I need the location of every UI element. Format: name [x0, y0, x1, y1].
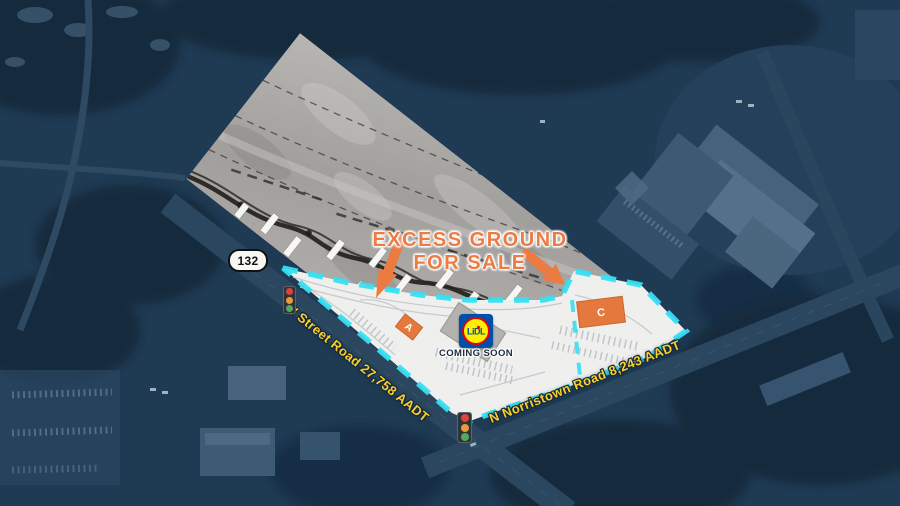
building-c: C	[577, 296, 626, 327]
building-c-label: C	[596, 307, 605, 320]
site-aerial-map: A C EXCESS GROUND FOR SALE W Street Road…	[0, 0, 900, 506]
signal-red-lamp	[286, 288, 293, 295]
signal-amber-lamp	[461, 424, 469, 432]
signal-amber-lamp	[286, 297, 293, 304]
signal-green-lamp	[286, 305, 293, 312]
traffic-signal-icon	[457, 412, 472, 443]
route-132-number: 132	[230, 251, 266, 270]
banner-line2: FOR SALE	[330, 252, 610, 275]
coming-soon-label: COMING SOON	[430, 348, 522, 359]
signal-green-lamp	[461, 433, 469, 441]
signal-red-lamp	[461, 414, 469, 422]
excess-ground-banner: EXCESS GROUND FOR SALE	[330, 229, 610, 275]
banner-line1: EXCESS GROUND	[330, 229, 610, 252]
traffic-signal-icon	[283, 286, 296, 314]
lidl-logo-circle: LiDL	[462, 317, 490, 345]
lidl-logo: LiDL	[459, 314, 493, 348]
route-132-shield: 132	[228, 249, 268, 272]
